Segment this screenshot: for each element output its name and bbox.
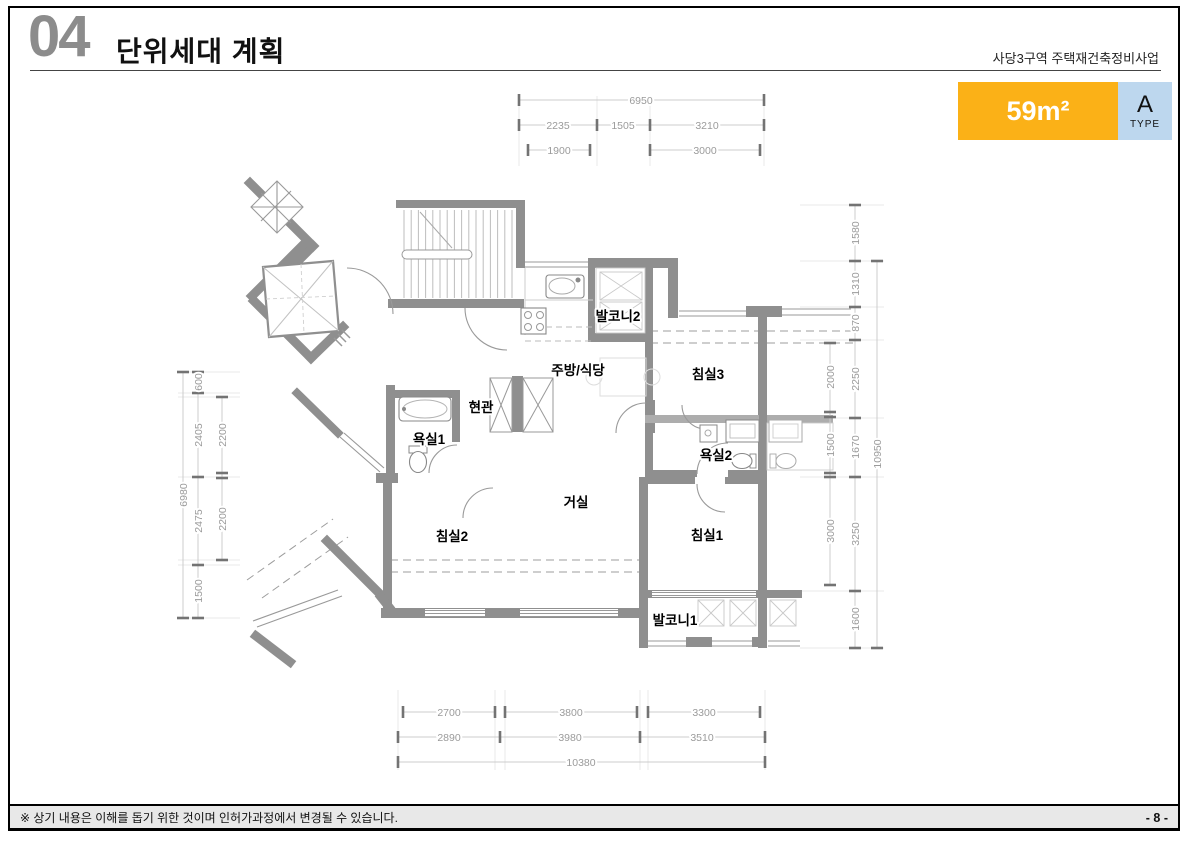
toilet-1 xyxy=(410,452,427,473)
toilet-2 xyxy=(732,454,752,469)
dimension-label: 10950 xyxy=(872,439,884,468)
page-number: - 8 - xyxy=(1146,811,1168,825)
dimension-label: 600 xyxy=(193,373,205,391)
dimension-label: 1900 xyxy=(547,145,571,157)
dimension-label: 10380 xyxy=(566,757,595,769)
dimension-label: 1500 xyxy=(825,433,837,457)
dimension-label: 3210 xyxy=(695,120,719,132)
bathtub-1 xyxy=(399,397,451,421)
diagonal-walls xyxy=(250,183,389,662)
dimension-label: 2200 xyxy=(217,507,229,531)
dimension-label: 2200 xyxy=(217,423,229,447)
room-label-bathroom-2: 욕실2 xyxy=(700,448,732,463)
presentation-page: 6950223515053210190030002700380033002890… xyxy=(0,0,1191,842)
type-badge: A TYPE xyxy=(1118,82,1172,140)
dimension-label: 2235 xyxy=(546,120,570,132)
footer-note: ※ 상기 내용은 이해를 돕기 위한 것이며 인허가과정에서 변경될 수 있습니… xyxy=(20,809,398,826)
room-label-bathroom-1: 욕실1 xyxy=(413,432,446,447)
dimension-label: 3510 xyxy=(690,732,714,744)
room-label-bedroom-3: 침실3 xyxy=(692,367,725,382)
dimension-label: 1505 xyxy=(611,120,635,132)
room-labels: 발코니2주방/식당침실3현관욕실1욕실2거실침실2침실1발코니1 xyxy=(413,308,732,628)
dimension-label: 2250 xyxy=(850,367,862,391)
type-word: TYPE xyxy=(1130,119,1160,130)
dimension-label: 3000 xyxy=(825,519,837,543)
type-letter: A xyxy=(1137,93,1153,117)
dimension-label: 3250 xyxy=(850,522,862,546)
dimension-label: 2475 xyxy=(193,509,205,533)
page-title: 단위세대 계획 xyxy=(116,30,285,70)
bath2-sink xyxy=(700,425,717,442)
dimension-label: 2700 xyxy=(437,707,461,719)
dimension-label: 2000 xyxy=(825,365,837,389)
section-number: 04 xyxy=(28,8,89,66)
room-label-bedroom-1: 침실1 xyxy=(691,528,724,543)
project-name: 사당3구역 주택재건축정비사업 xyxy=(993,48,1159,67)
room-label-balcony-2: 발코니2 xyxy=(596,308,641,324)
dimension-label: 3980 xyxy=(558,732,582,744)
dimension-label: 1670 xyxy=(850,435,862,459)
elevator-shaft xyxy=(263,261,339,337)
bathtub-2 xyxy=(726,420,759,442)
exterior-window-overlays xyxy=(425,591,756,617)
dimension-label: 1580 xyxy=(850,221,862,245)
area-badge-label: 59m² xyxy=(1006,96,1069,127)
dimension-label: 3800 xyxy=(559,707,583,719)
dimension-label: 2890 xyxy=(437,732,461,744)
room-label-bedroom-2: 침실2 xyxy=(436,529,468,544)
dimension-label: 3000 xyxy=(693,145,717,157)
area-badge: 59m² xyxy=(958,82,1118,140)
dimension-label: 1600 xyxy=(850,607,862,631)
footer-bar: ※ 상기 내용은 이해를 돕기 위한 것이며 인허가과정에서 변경될 수 있습니… xyxy=(8,804,1180,831)
dimension-label: 2405 xyxy=(193,423,205,447)
room-label-entrance: 현관 xyxy=(469,399,494,415)
room-label-balcony-1: 발코니1 xyxy=(653,612,698,628)
dimension-label: 6980 xyxy=(178,483,190,507)
dimension-label: 3300 xyxy=(692,707,716,719)
dimension-label: 870 xyxy=(850,314,862,332)
room-label-kitchen-dining: 주방/식당 xyxy=(551,362,605,378)
dimension-label: 6950 xyxy=(629,95,653,107)
header-rule xyxy=(30,70,1161,71)
room-label-living-room: 거실 xyxy=(564,495,589,510)
dimension-label: 1500 xyxy=(193,579,205,603)
dimension-label: 1310 xyxy=(850,272,862,296)
